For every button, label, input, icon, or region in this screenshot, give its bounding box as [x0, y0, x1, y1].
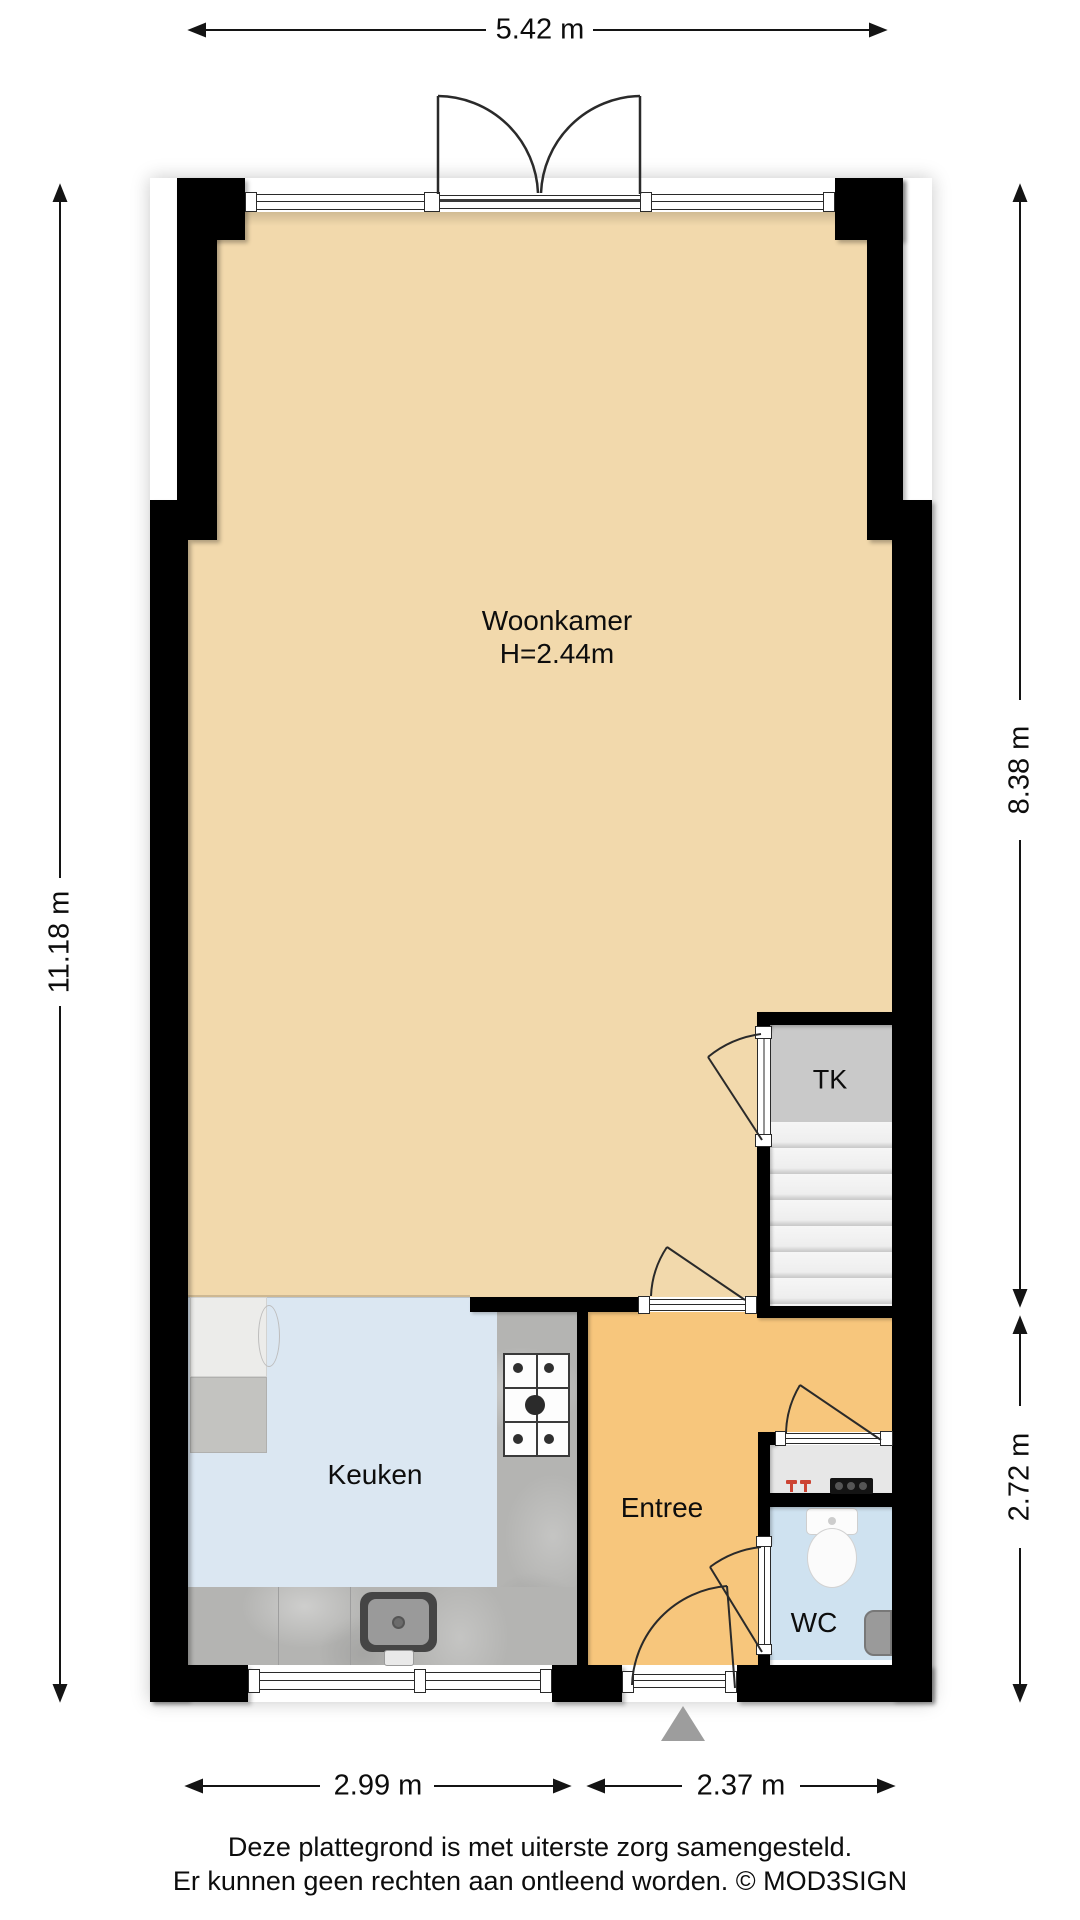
room-label-wc: WC: [791, 1607, 838, 1639]
tk-door-frame: [757, 1038, 771, 1135]
hob-burner-2: [544, 1363, 554, 1373]
dimension-left: 11.18 m: [44, 891, 77, 994]
window-jamb-3: [640, 192, 652, 212]
kitchen-sink-drain: [392, 1616, 405, 1629]
toilet-bowl: [807, 1528, 857, 1588]
wall-bottom-right: [737, 1665, 932, 1702]
dimension-top: 5.42 m: [488, 14, 593, 47]
kitchen-unit-circle: [258, 1305, 280, 1367]
window-jamb-2: [424, 192, 440, 212]
meter-closet-floor: [770, 1445, 892, 1493]
window-bottom-pane-2: [426, 1672, 540, 1690]
window-jamb-1: [245, 192, 257, 212]
floorplan-page: Woonkamer H=2.44m TK Keuken Entree WC 5.…: [0, 0, 1080, 1920]
window-bottom-jamb-1: [248, 1669, 260, 1693]
wall-right-step: [867, 500, 892, 540]
room-label-tk: TK: [813, 1065, 848, 1096]
kitchen-tall-unit-white: [190, 1297, 267, 1377]
hob-burner-4: [544, 1434, 554, 1444]
entree-floor-extension: [757, 1318, 893, 1432]
disclaimer-line-2: Er kunnen geen rechten aan ontleend word…: [0, 1866, 1080, 1897]
window-top-left: [257, 194, 424, 210]
toilet-tank-button: [828, 1517, 836, 1525]
double-door-threshold: [440, 195, 640, 209]
meterkast-door-jamb-left: [775, 1431, 786, 1446]
window-jamb-4: [823, 192, 835, 212]
wall-right-lower: [892, 500, 932, 1700]
entrance-marker-triangle: [661, 1706, 705, 1741]
front-door-threshold: [634, 1674, 725, 1688]
wc-door-frame: [758, 1546, 771, 1646]
wall-tk-top: [757, 1012, 893, 1025]
wall-left-lower: [150, 500, 188, 1700]
kitchen-faucet: [384, 1650, 414, 1666]
wc-door-jamb-bottom: [756, 1644, 772, 1655]
window-bottom-jamb-3: [540, 1669, 552, 1693]
wall-tk-left-lower: [757, 1145, 770, 1310]
wall-right-upper: [867, 178, 903, 500]
kitchen-tall-unit-gray: [190, 1377, 267, 1453]
room-label-woonkamer-height: H=2.44m: [500, 638, 614, 670]
hob-burner-3: [513, 1434, 523, 1444]
tk-door-jamb-top: [755, 1026, 772, 1039]
meterkast-door-jamb-right: [880, 1431, 893, 1446]
counter-seam-2: [350, 1587, 351, 1665]
wall-meterkast-top-stub: [758, 1432, 775, 1445]
entree-floor: [588, 1312, 758, 1665]
entree-door-frame: [650, 1299, 745, 1311]
window-bottom-pane-1: [260, 1672, 414, 1690]
hob-burner-center: [525, 1395, 545, 1415]
wall-meterkast-bottom: [758, 1493, 893, 1507]
wall-woonkamer-entree: [470, 1297, 638, 1312]
woonkamer-floor-lower: [188, 1012, 757, 1297]
tk-door-jamb-bottom: [755, 1134, 772, 1147]
front-door-jamb-right: [725, 1671, 737, 1693]
wall-wc-left-upper: [758, 1445, 770, 1543]
dimension-right-lower: 2.72 m: [1004, 1433, 1037, 1522]
meterkast-door-frame: [785, 1433, 881, 1444]
wall-bottom-left: [150, 1665, 248, 1702]
dimension-right-upper: 8.38 m: [1004, 726, 1037, 815]
wall-left-step: [188, 500, 217, 540]
entree-door-jamb-left: [638, 1296, 650, 1314]
wall-bottom-mid: [552, 1665, 622, 1702]
window-top-right: [652, 194, 823, 210]
hob-burner-1: [513, 1363, 523, 1373]
wc-hand-basin: [864, 1610, 892, 1656]
wall-left-upper: [177, 178, 217, 500]
counter-seam-1: [278, 1587, 279, 1665]
woonkamer-floor-upper: [217, 212, 867, 545]
entree-door-jamb-right: [745, 1296, 757, 1314]
room-label-keuken: Keuken: [328, 1459, 423, 1491]
woonkamer-window-shadow: [217, 212, 867, 226]
room-label-entree: Entree: [621, 1492, 704, 1524]
dimension-bottom-right: 2.37 m: [697, 1770, 786, 1803]
wall-keuken-entree: [577, 1312, 588, 1665]
staircase: [770, 1122, 892, 1306]
disclaimer-line-1: Deze plattegrond is met uiterste zorg sa…: [0, 1832, 1080, 1863]
dimension-bottom-left: 2.99 m: [334, 1770, 423, 1803]
window-bottom-jamb-2: [414, 1669, 426, 1693]
wc-door-jamb-top: [756, 1536, 772, 1547]
wall-stairs-bottom: [757, 1306, 893, 1318]
room-label-woonkamer: Woonkamer: [482, 605, 632, 637]
front-door-jamb-left: [622, 1671, 634, 1693]
